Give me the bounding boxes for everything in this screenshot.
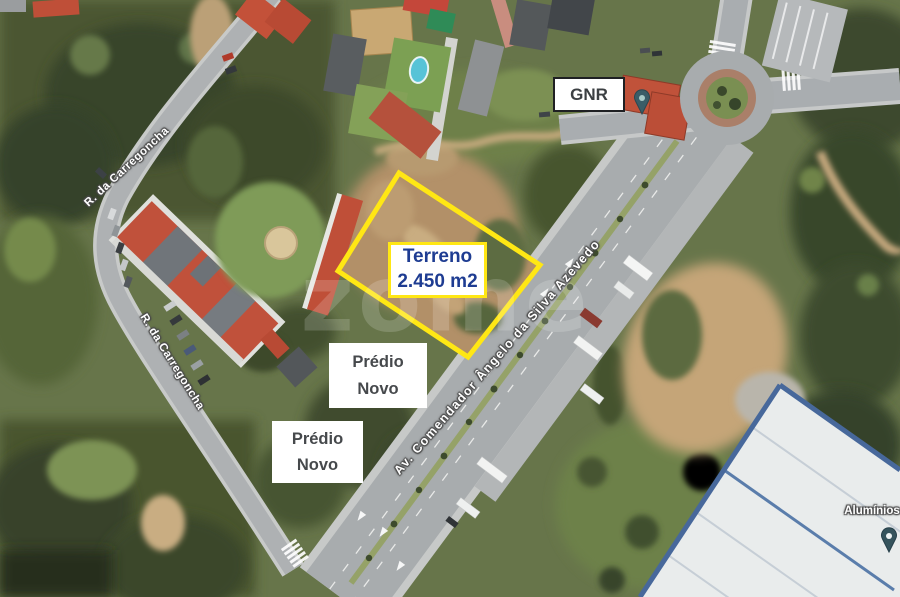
garden [187, 126, 243, 198]
terreno-area: 2.450 m2 [397, 270, 477, 295]
car [539, 111, 550, 117]
car [640, 48, 650, 54]
predio-line2: Novo [357, 376, 398, 402]
sand-circle [265, 227, 297, 259]
gnr-label-box: GNR [553, 77, 625, 112]
car [652, 51, 662, 57]
predio-novo-box-1: Prédio Novo [329, 343, 427, 408]
gnr-label-text: GNR [570, 85, 608, 105]
predio-line1: Prédio [352, 349, 403, 375]
roundabout [680, 51, 774, 145]
terreno-title: Terreno [403, 245, 472, 270]
street-label-aluminios: Alumínios [844, 505, 900, 517]
predio-line2: Novo [297, 452, 338, 478]
satellite-map: zome R. da Carregoncha R. da Carregoncha… [0, 0, 900, 597]
predio-novo-box-2: Prédio Novo [272, 421, 363, 483]
bare-patch [141, 495, 185, 551]
predio-line1: Prédio [292, 426, 343, 452]
terreno-label-box: Terreno 2.450 m2 [388, 242, 487, 298]
